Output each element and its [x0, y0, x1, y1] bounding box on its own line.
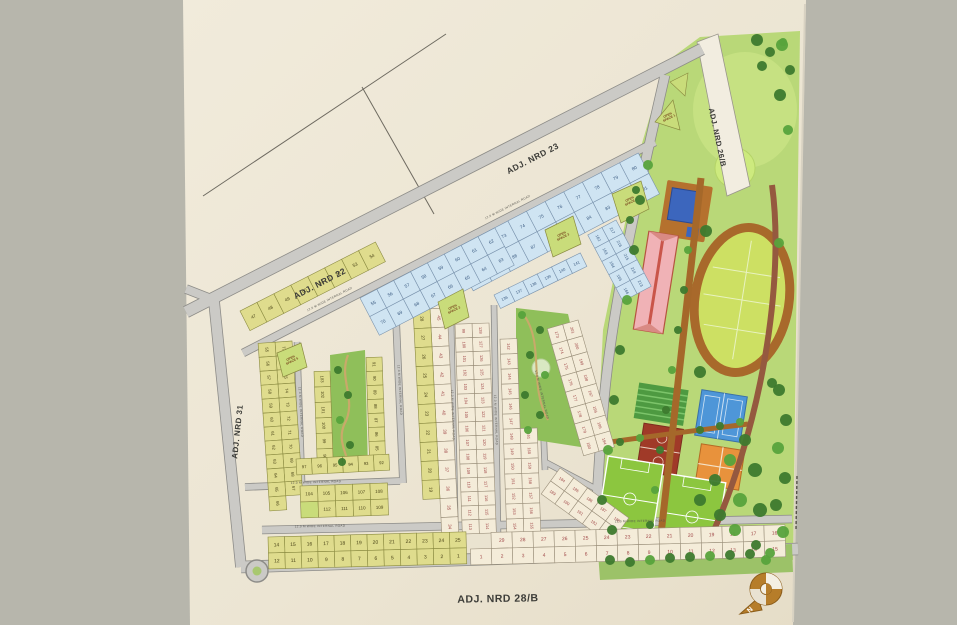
plot-number: 35: [446, 505, 451, 511]
plot-number: 3: [522, 553, 525, 559]
plot-number: 156: [529, 507, 534, 515]
tree-icon: [536, 411, 544, 419]
tree-icon: [783, 125, 793, 135]
plot-number: 115: [484, 509, 489, 516]
plot-number: 155: [529, 522, 534, 530]
plot-number: 112: [467, 509, 472, 516]
tree-icon: [524, 426, 532, 434]
plot-number: 159: [527, 462, 532, 470]
plot-number: 24: [604, 535, 610, 541]
plot-number: 103: [320, 375, 325, 383]
plot-number: 111: [467, 496, 472, 503]
tree-icon: [772, 442, 784, 454]
plot-number: 19: [709, 532, 715, 538]
plot-number: 15: [290, 542, 296, 548]
plot-number: 144: [507, 373, 512, 381]
tree-icon: [745, 549, 755, 559]
plot-number: 152: [511, 493, 516, 501]
plot-number: 110: [358, 505, 366, 510]
tree-icon: [757, 61, 767, 71]
tree-icon: [761, 555, 771, 565]
plot-number: 107: [358, 489, 366, 494]
tree-icon: [779, 38, 787, 46]
site-plan-photo: 4748495051525354777675747372717069686755…: [0, 0, 957, 625]
plot-number: 5: [391, 555, 394, 561]
tree-icon: [785, 65, 795, 75]
plot-number: 90: [372, 376, 377, 382]
tree-icon: [607, 525, 617, 535]
tree-icon: [521, 391, 529, 399]
plot-number: 109: [376, 505, 384, 510]
plot-number: 102: [320, 391, 325, 399]
plot-number: 25: [583, 535, 589, 541]
plot-number: 151: [511, 478, 516, 486]
tree-icon: [709, 474, 721, 486]
plot-number: 114: [485, 523, 490, 530]
plot-number: 12: [274, 558, 280, 564]
plot-number: 34: [447, 524, 452, 530]
plot-number: 86: [374, 432, 379, 438]
tree-icon: [616, 438, 624, 446]
tree-icon: [615, 345, 625, 355]
tree-icon: [518, 311, 526, 319]
tree-icon: [674, 326, 682, 334]
tree-icon: [629, 245, 639, 255]
plot-number: 45: [436, 315, 441, 321]
tree-icon: [656, 446, 664, 454]
plot-number: 22: [646, 534, 652, 540]
tree-icon: [714, 509, 726, 521]
plot-number: 28: [520, 537, 526, 543]
tree-icon: [651, 486, 659, 494]
plot-number: 36: [445, 486, 450, 492]
tree-icon: [603, 445, 613, 455]
plot-number: 88: [373, 404, 378, 410]
tree-icon: [773, 384, 785, 396]
tree-icon: [705, 551, 715, 561]
plot-number: 23: [424, 411, 429, 417]
tree-icon: [625, 557, 635, 567]
tree-icon: [774, 238, 784, 248]
plot-number: 106: [340, 490, 348, 495]
plot-number: 25: [422, 373, 427, 379]
plot-number: 122: [481, 411, 486, 419]
tree-icon: [668, 366, 676, 374]
tree-icon: [716, 422, 724, 430]
plot-number: 7: [358, 556, 361, 562]
tree-icon: [662, 406, 670, 414]
plot-number: 20: [688, 533, 694, 539]
plot-number: 154: [512, 523, 517, 531]
plot-number: 23: [625, 534, 631, 540]
tree-icon: [685, 552, 695, 562]
plot-block-bottom-yellow: 141516171819202122232425121110987654321: [268, 532, 467, 569]
plot-number: 104: [305, 491, 313, 496]
tree-icon: [739, 434, 751, 446]
tree-icon: [748, 463, 762, 477]
plot-number: 101: [321, 406, 326, 414]
plot-number: 39: [442, 429, 447, 435]
plot-number: 3: [424, 554, 427, 560]
plot-number: 25: [455, 538, 461, 544]
plot-number: 21: [667, 533, 673, 539]
plot-number: 125: [480, 369, 485, 377]
plot-cell: [301, 501, 319, 518]
plot-number: 100: [321, 422, 326, 430]
tree-icon: [700, 225, 712, 237]
tree-icon: [597, 495, 607, 505]
plot-block-park-left-col: 1031021011009998: [314, 371, 333, 465]
plot-number: 17: [323, 541, 329, 547]
plot-number: 147: [509, 418, 514, 426]
plot-number: 28: [419, 316, 424, 322]
plot-number: 44: [437, 334, 442, 340]
plot-number: 100: [462, 341, 467, 349]
tree-icon: [777, 526, 789, 538]
plot-number: 37: [444, 467, 449, 473]
plot-number: 107: [465, 439, 470, 447]
plot-number: 10: [307, 557, 313, 563]
plot-number: 153: [512, 508, 517, 516]
tree-icon: [605, 555, 615, 565]
plot-number: 41: [440, 391, 445, 397]
tennis-courts: [695, 390, 748, 443]
plot-number: 106: [464, 425, 469, 433]
plot-number: 101: [462, 355, 467, 363]
tree-icon: [334, 366, 342, 374]
plot-number: 87: [374, 418, 379, 424]
plot-number: 22: [425, 430, 430, 436]
plot-number: 126: [479, 355, 484, 363]
plot-number: 40: [441, 410, 446, 416]
plot-number: 4: [407, 555, 410, 561]
plot-number: 8: [627, 550, 630, 556]
plot-number: 8: [341, 557, 344, 563]
plot-number: 19: [428, 487, 433, 493]
plot-number: 105: [464, 411, 469, 419]
plot-number: 17: [751, 531, 757, 537]
tree-icon: [684, 246, 692, 254]
plot-number: 150: [510, 463, 515, 471]
plot-number: 124: [480, 383, 485, 391]
plot-number: 103: [463, 383, 468, 391]
plot-number: 26: [562, 536, 568, 542]
plot-number: 116: [484, 495, 489, 502]
plot-number: 16: [772, 531, 778, 537]
tree-icon: [780, 414, 792, 426]
tree-icon: [724, 454, 736, 466]
plot-number: 89: [373, 390, 378, 396]
plot-number: 157: [528, 492, 533, 500]
tree-icon: [643, 160, 653, 170]
plot-number: 149: [510, 448, 515, 456]
plot-number: 105: [323, 491, 331, 496]
plot-number: 26: [421, 354, 426, 360]
plot-number: 120: [482, 439, 487, 447]
plot-number: 20: [373, 540, 379, 546]
plot-number: 16: [307, 541, 313, 547]
plot-number: 2: [501, 554, 504, 560]
tree-icon: [765, 47, 775, 57]
plot-number: 99: [322, 439, 327, 445]
plot-number: 6: [585, 552, 588, 558]
tree-icon: [733, 493, 747, 507]
tree-icon: [645, 555, 655, 565]
plot-block-center-col-1: 1281271261251241231221211201191181171161…: [455, 323, 496, 534]
plot-number: 6: [374, 556, 377, 562]
tree-icon: [751, 540, 761, 550]
plot-number: 145: [508, 388, 513, 396]
plot-number: 9: [325, 557, 328, 563]
tree-icon: [665, 553, 675, 563]
tree-icon: [636, 434, 644, 442]
tree-icon: [338, 458, 346, 466]
tree-icon: [694, 366, 706, 378]
plot-number: 14: [274, 542, 280, 548]
plot-number: 123: [480, 397, 485, 405]
plot-number: 112: [323, 507, 331, 512]
plot-number: 24: [439, 538, 445, 544]
plot-number: 118: [483, 467, 488, 474]
plot-number: 111: [341, 506, 349, 511]
tree-icon: [680, 286, 688, 294]
road-label-nrd28b: ADJ. NRD 28/B: [457, 592, 538, 605]
plot-block-block-104: 104105106107108112111110109: [300, 483, 389, 518]
plot-number: 109: [466, 467, 471, 475]
tree-icon: [736, 418, 744, 426]
plot-number: 20: [427, 468, 432, 474]
tree-icon: [725, 550, 735, 560]
plot-number: 27: [420, 335, 425, 341]
plot-number: 108: [375, 489, 383, 494]
plot-number: 91: [372, 362, 377, 368]
plot-number: 21: [426, 449, 431, 455]
plot-number: 21: [389, 539, 395, 545]
plot-number: 1: [480, 554, 483, 560]
tree-icon: [609, 395, 619, 405]
plot-number: 110: [466, 482, 471, 489]
plot-number: 142: [506, 343, 511, 351]
plot-number: 29: [499, 538, 505, 544]
plot-number: 119: [482, 453, 487, 460]
tree-icon: [541, 371, 549, 379]
plot-number: 121: [481, 425, 486, 433]
plot-number: 38: [443, 448, 448, 454]
tree-icon: [526, 351, 534, 359]
plot-number: 22: [406, 539, 412, 545]
tree-icon: [694, 494, 706, 506]
tree-icon: [729, 524, 741, 536]
plot-number: 158: [528, 477, 533, 485]
tree-icon: [536, 326, 544, 334]
tree-icon: [635, 195, 645, 205]
plot-number: 5: [564, 552, 567, 558]
tree-icon: [622, 295, 632, 305]
plot-number: 85: [375, 446, 380, 452]
plot-number: 117: [483, 481, 488, 488]
tree-icon: [626, 216, 634, 224]
plot-number: 146: [508, 403, 513, 411]
plot-number: 2: [440, 554, 443, 560]
plot-number: 160: [527, 447, 532, 455]
tree-icon: [774, 89, 786, 101]
plot-number: 143: [507, 358, 512, 366]
tree-icon: [336, 416, 344, 424]
plot-number: 102: [463, 369, 468, 377]
tree-icon: [346, 441, 354, 449]
plot-number: 42: [439, 372, 444, 378]
plot-number: 108: [465, 453, 470, 461]
tree-icon: [696, 426, 704, 434]
plot-number: 128: [478, 327, 483, 335]
plot-number: 43: [438, 353, 443, 359]
tree-icon: [779, 472, 791, 484]
plot-number: 24: [423, 392, 428, 398]
plot-number: 11: [291, 558, 297, 564]
tree-icon: [770, 499, 782, 511]
plot-number: 113: [468, 523, 473, 530]
plot-number: 104: [463, 397, 468, 405]
plot-number: 4: [543, 553, 546, 559]
plot-number: 148: [509, 433, 514, 441]
plot-number: 19: [356, 540, 362, 546]
plot-number: 18: [340, 541, 346, 547]
plot-number: 23: [422, 538, 428, 544]
plot-number: 127: [479, 341, 484, 349]
tree-icon: [753, 503, 767, 517]
plot-number: 1: [457, 554, 460, 560]
tree-icon: [632, 186, 640, 194]
plot-number: 27: [541, 537, 547, 543]
roundabout-island: [253, 567, 262, 576]
tree-icon: [751, 34, 763, 46]
layout-map: 4748495051525354777675747372717069686755…: [0, 0, 957, 625]
tree-icon: [344, 391, 352, 399]
